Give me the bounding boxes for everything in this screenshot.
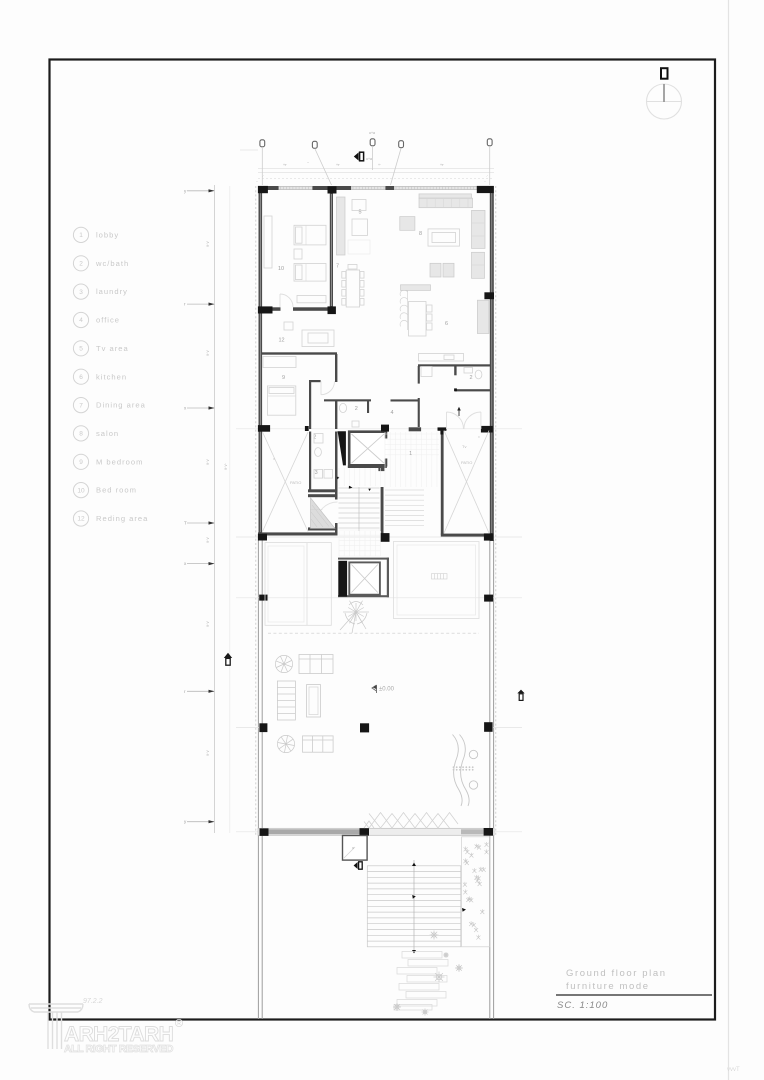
svg-text:1: 1 (409, 451, 412, 457)
svg-text:4: 4 (390, 410, 393, 416)
svg-text:7: 7 (79, 402, 83, 409)
svg-text:.·: .· (262, 174, 264, 178)
svg-text:v·v: v·v (205, 350, 210, 356)
svg-text:u+a: u+a (366, 157, 372, 161)
svg-text:v·v: v·v (205, 459, 210, 465)
svg-text:3: 3 (315, 470, 318, 476)
svg-text:2: 2 (79, 261, 83, 268)
svg-text:x: x (273, 456, 275, 461)
svg-text:Tv area: Tv area (96, 344, 129, 353)
svg-text:2: 2 (355, 406, 358, 412)
svg-text:Reding area: Reding area (96, 514, 148, 523)
svg-text:vvvT: vvvT (727, 1067, 740, 1073)
svg-text:+·: +· (378, 163, 381, 167)
svg-text:10: 10 (77, 487, 85, 494)
svg-text:····· ······: ····· ······ (310, 508, 323, 512)
svg-text:8: 8 (419, 231, 422, 237)
svg-text:v·v: v·v (205, 241, 210, 247)
svg-text:9: 9 (79, 459, 83, 466)
svg-text:97.2.2: 97.2.2 (83, 998, 103, 1005)
svg-text:+r·: +r· (283, 163, 287, 167)
svg-text:lobby: lobby (96, 231, 119, 240)
svg-text:10: 10 (278, 266, 284, 272)
svg-text:salon: salon (96, 429, 119, 438)
svg-text:··: ·· (256, 180, 258, 184)
svg-text:PATIO: PATIO (461, 460, 472, 465)
svg-text:.·: .· (486, 174, 488, 178)
svg-text:±0.00: ±0.00 (379, 687, 395, 693)
svg-text:v·v: v·v (205, 621, 210, 627)
svg-text:x: x (352, 845, 354, 850)
svg-text:T: T (184, 521, 187, 526)
svg-text:12: 12 (278, 338, 284, 344)
svg-text:Tv: Tv (462, 444, 466, 449)
svg-text:v·v·: v·v· (223, 463, 228, 470)
svg-text:6: 6 (79, 374, 83, 381)
svg-text:12: 12 (77, 516, 85, 523)
svg-text:R: R (177, 1021, 181, 1027)
svg-text:v·v: v·v (205, 750, 210, 756)
svg-text:u+a: u+a (369, 131, 375, 135)
svg-text:+r·: +r· (440, 163, 444, 167)
svg-text:M bedroom: M bedroom (96, 457, 143, 466)
svg-text:SC. 1:100: SC. 1:100 (557, 1000, 608, 1011)
svg-text:kitchen: kitchen (96, 372, 127, 381)
svg-text:5: 5 (79, 346, 83, 353)
svg-text:PATIO: PATIO (290, 480, 301, 485)
svg-text:7: 7 (336, 264, 339, 270)
svg-text:laundry: laundry (96, 287, 128, 296)
svg-text:ALL RIGHT RESERVED: ALL RIGHT RESERVED (64, 1043, 174, 1055)
svg-text:v·v: v·v (205, 537, 210, 543)
svg-text:x: x (478, 435, 480, 439)
svg-text:~: ~ (307, 161, 309, 165)
svg-text:3: 3 (79, 289, 83, 296)
svg-text:8: 8 (79, 431, 83, 438)
svg-text:9: 9 (282, 375, 285, 381)
svg-text:+r·: +r· (336, 163, 340, 167)
svg-text:Bed room: Bed room (96, 486, 137, 495)
svg-text:2: 2 (469, 375, 472, 381)
svg-text:4: 4 (79, 317, 83, 324)
svg-text:wc/bath: wc/bath (95, 259, 129, 268)
svg-text:furniture mode: furniture mode (566, 981, 650, 992)
svg-text:Dining area: Dining area (96, 401, 146, 410)
svg-text:office: office (96, 316, 120, 325)
svg-text:1: 1 (79, 232, 83, 239)
svg-text:Ground floor plan: Ground floor plan (566, 968, 667, 979)
svg-text:6: 6 (445, 321, 448, 327)
svg-text:··: ·· (484, 180, 486, 184)
